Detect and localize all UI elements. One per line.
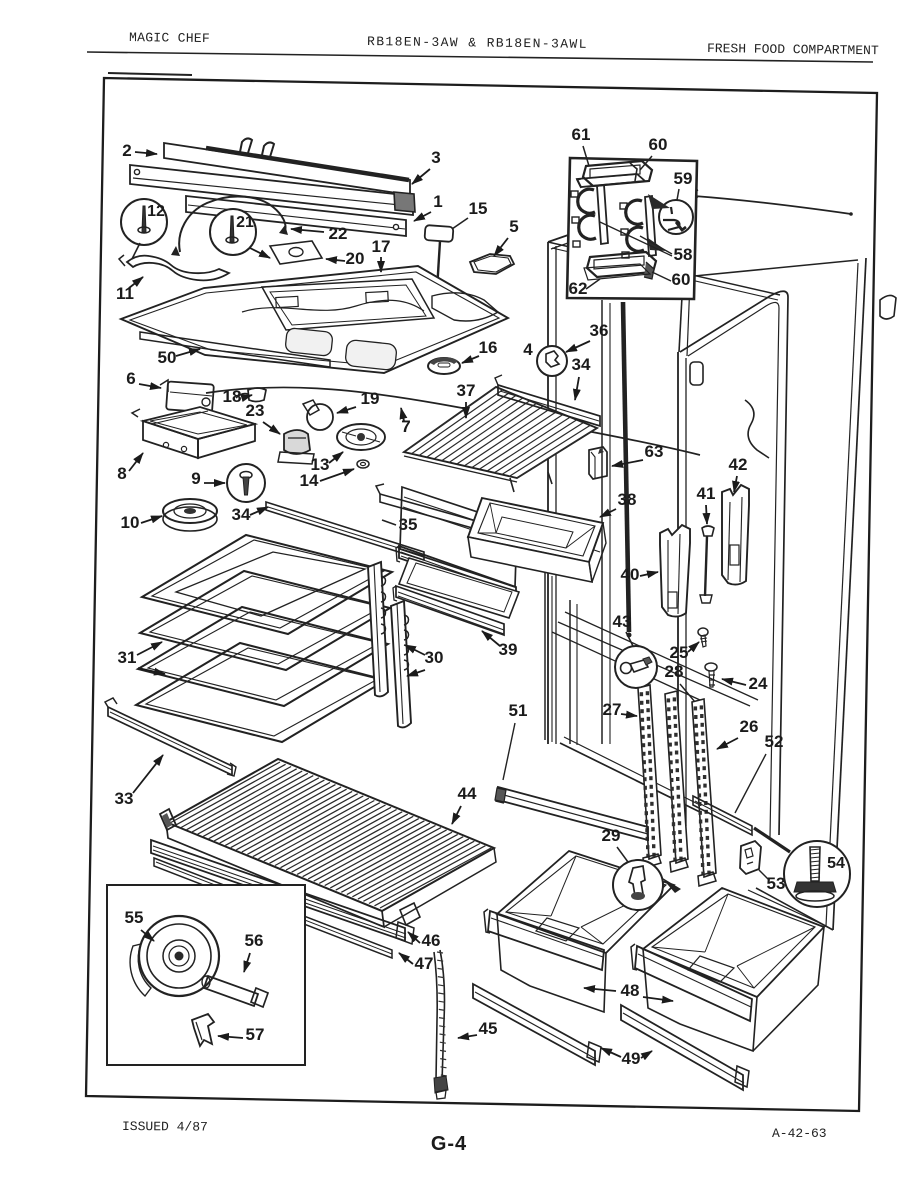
svg-text:25: 25 [670, 643, 689, 662]
svg-text:17: 17 [372, 237, 391, 256]
svg-text:1: 1 [433, 192, 442, 211]
svg-text:45: 45 [479, 1019, 498, 1038]
svg-text:G-4: G-4 [431, 1133, 467, 1155]
svg-text:52: 52 [765, 732, 784, 751]
svg-text:47: 47 [415, 954, 434, 973]
svg-text:42: 42 [729, 455, 748, 474]
svg-text:6: 6 [126, 369, 135, 388]
svg-text:24: 24 [749, 674, 768, 693]
svg-text:5: 5 [509, 217, 518, 236]
svg-text:34: 34 [572, 355, 591, 374]
svg-text:21: 21 [236, 214, 254, 231]
svg-text:53: 53 [767, 874, 786, 893]
svg-text:14: 14 [300, 471, 319, 490]
svg-text:9: 9 [191, 469, 200, 488]
svg-text:26: 26 [740, 717, 759, 736]
svg-text:34: 34 [232, 505, 251, 524]
svg-text:3: 3 [431, 148, 440, 167]
svg-text:23: 23 [246, 401, 265, 420]
svg-text:FRESH FOOD COMPARTMENT: FRESH FOOD COMPARTMENT [707, 41, 879, 58]
svg-text:27: 27 [603, 700, 622, 719]
svg-text:62: 62 [569, 279, 588, 298]
svg-text:28: 28 [665, 662, 684, 681]
svg-text:41: 41 [697, 484, 716, 503]
svg-text:30: 30 [425, 648, 444, 667]
svg-text:39: 39 [499, 640, 518, 659]
svg-text:8: 8 [117, 464, 126, 483]
svg-text:19: 19 [361, 389, 380, 408]
svg-text:50: 50 [158, 348, 177, 367]
svg-text:37: 37 [457, 381, 476, 400]
svg-text:29: 29 [602, 826, 621, 845]
svg-text:46: 46 [422, 931, 441, 950]
svg-text:4: 4 [523, 340, 533, 359]
svg-text:33: 33 [115, 789, 134, 808]
svg-text:60: 60 [672, 270, 691, 289]
svg-text:10: 10 [121, 513, 140, 532]
svg-text:61: 61 [572, 125, 591, 144]
svg-text:49: 49 [622, 1049, 641, 1068]
svg-text:59: 59 [674, 169, 693, 188]
svg-text:60: 60 [649, 135, 668, 154]
svg-text:RB18EN-3AW & RB18EN-3AWL: RB18EN-3AW & RB18EN-3AWL [367, 34, 588, 52]
svg-text:12: 12 [147, 203, 165, 220]
svg-text:38: 38 [618, 490, 637, 509]
svg-text:57: 57 [246, 1025, 265, 1044]
svg-text:7: 7 [401, 417, 410, 436]
svg-text:31: 31 [118, 648, 137, 667]
svg-text:16: 16 [479, 338, 498, 357]
svg-text:58: 58 [674, 245, 693, 264]
svg-text:20: 20 [346, 249, 365, 268]
svg-text:15: 15 [469, 199, 488, 218]
svg-text:22: 22 [329, 224, 348, 243]
svg-text:43: 43 [613, 612, 632, 631]
svg-text:40: 40 [621, 565, 640, 584]
svg-text:54: 54 [827, 855, 845, 872]
svg-text:2: 2 [122, 141, 131, 160]
svg-text:MAGIC CHEF: MAGIC CHEF [129, 30, 210, 46]
svg-text:55: 55 [125, 908, 144, 927]
svg-text:44: 44 [458, 784, 477, 803]
svg-text:48: 48 [621, 981, 640, 1000]
svg-text:A-42-63: A-42-63 [772, 1126, 827, 1141]
svg-text:36: 36 [590, 321, 609, 340]
svg-text:18: 18 [223, 387, 242, 406]
svg-text:63: 63 [645, 442, 664, 461]
svg-text:51: 51 [509, 701, 528, 720]
svg-text:56: 56 [245, 931, 264, 950]
svg-text:ISSUED 4/87: ISSUED 4/87 [122, 1119, 208, 1135]
